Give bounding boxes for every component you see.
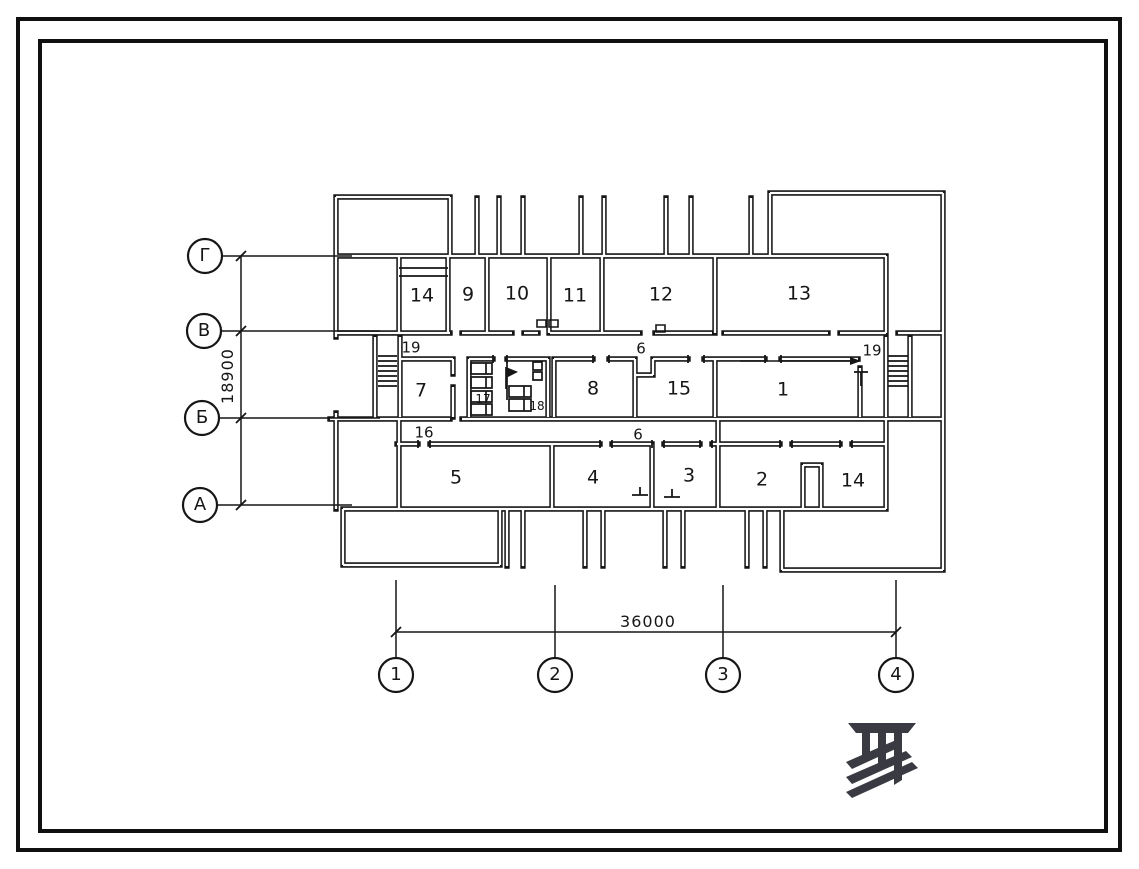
vcis-emblem-icon: [842, 720, 922, 798]
dimension-lines: [217, 251, 901, 658]
stair-left-hatch: [378, 356, 397, 386]
corridor-label-16: 16: [414, 426, 433, 441]
room-label-17: 17: [475, 393, 490, 405]
room-label-5: 5: [450, 469, 462, 488]
dimension-vertical: 18900: [220, 348, 236, 404]
vcis-logo: ВЦИС: [842, 714, 1092, 800]
room-label-top-13: 13: [787, 285, 811, 304]
room-label-18: 18: [529, 400, 544, 412]
axis-label-1: 1: [390, 666, 401, 684]
room-label-3: 3: [683, 467, 695, 486]
room-label-4: 4: [587, 469, 599, 488]
axis-label-2: 2: [549, 666, 560, 684]
room-label-2: 2: [756, 471, 768, 490]
axis-label-v: В: [198, 322, 210, 340]
room-label-15: 15: [667, 380, 691, 399]
vestibule-label-19-left: 19: [401, 341, 420, 356]
shelf-lines-room14: [399, 268, 448, 276]
room-label-7: 7: [415, 382, 427, 401]
room-label-top-14: 14: [410, 287, 434, 306]
room-label-low-14: 14: [841, 472, 865, 491]
room-label-top-11: 11: [563, 287, 587, 306]
axis-label-g: Г: [200, 247, 211, 265]
room-label-8: 8: [587, 380, 599, 399]
room-label-1: 1: [777, 381, 789, 400]
axis-label-3: 3: [717, 666, 728, 684]
dimension-horizontal: 36000: [620, 614, 676, 630]
corridor-label-6-bottom: 6: [633, 428, 643, 443]
room-label-top-10: 10: [505, 285, 529, 304]
corridor-label-6-top: 6: [636, 342, 646, 357]
axis-label-a: А: [194, 496, 206, 514]
axis-label-4: 4: [890, 666, 901, 684]
stair-right-hatch: [888, 356, 908, 386]
room-label-top-12: 12: [649, 286, 673, 305]
vestibule-label-19-right: 19: [862, 344, 881, 359]
room-label-top-9: 9: [462, 286, 474, 305]
drawing-sheet: Г В Б А 1 2 3 4 18900 36000 14 9 10 11 1…: [0, 0, 1139, 869]
axis-label-b: Б: [196, 409, 208, 427]
